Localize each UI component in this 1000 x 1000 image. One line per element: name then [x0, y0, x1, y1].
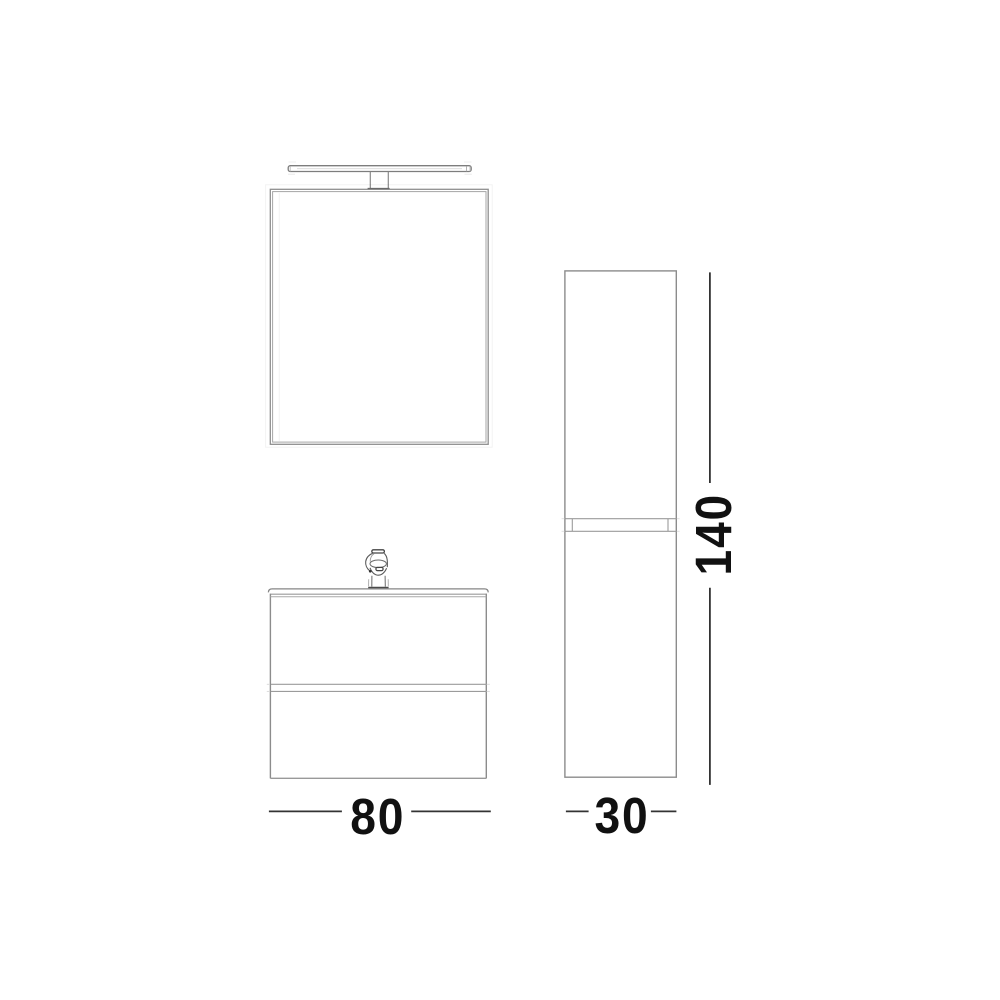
svg-text:30: 30 [594, 788, 649, 845]
svg-text:80: 80 [350, 789, 405, 846]
svg-text:140: 140 [686, 493, 743, 576]
